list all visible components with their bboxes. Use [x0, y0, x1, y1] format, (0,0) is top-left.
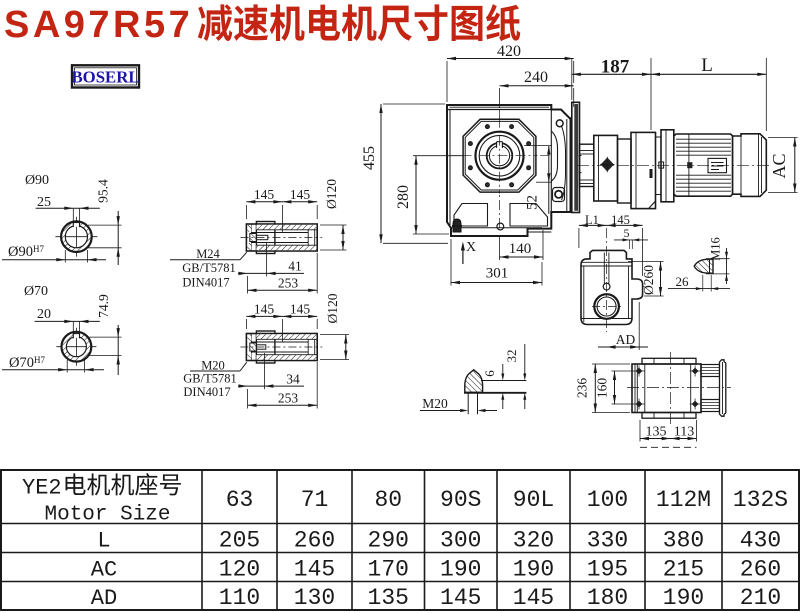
- svg-text:95.4: 95.4: [96, 179, 111, 203]
- svg-text:253: 253: [278, 276, 299, 291]
- svg-text:330: 330: [587, 528, 628, 554]
- svg-text:90L: 90L: [513, 487, 554, 513]
- svg-text:Motor Size: Motor Size: [44, 504, 170, 527]
- svg-text:M20: M20: [201, 359, 225, 373]
- svg-text:Ø90: Ø90: [25, 173, 49, 188]
- svg-text:301: 301: [486, 266, 509, 282]
- svg-text:DIN4017: DIN4017: [182, 276, 229, 290]
- svg-text:260: 260: [740, 557, 781, 583]
- svg-text:Ø70: Ø70: [24, 284, 48, 299]
- svg-text:Ø120: Ø120: [324, 179, 339, 209]
- svg-text:52: 52: [525, 195, 541, 210]
- svg-text:DIN4017: DIN4017: [183, 385, 230, 399]
- svg-text:455: 455: [361, 146, 378, 170]
- svg-text:210: 210: [740, 585, 781, 611]
- svg-text:280: 280: [395, 185, 412, 209]
- svg-text:145: 145: [440, 585, 481, 611]
- svg-text:140: 140: [509, 241, 532, 257]
- svg-text:AD: AD: [91, 586, 117, 611]
- svg-text:80: 80: [374, 487, 402, 513]
- svg-text:215: 215: [663, 557, 704, 583]
- svg-text:GB/T5781: GB/T5781: [182, 261, 235, 275]
- svg-text:253: 253: [278, 391, 299, 406]
- svg-text:290: 290: [368, 528, 409, 554]
- svg-text:380: 380: [663, 528, 704, 554]
- svg-text:32: 32: [504, 350, 519, 363]
- svg-text:L: L: [97, 529, 110, 554]
- svg-text:6: 6: [482, 370, 497, 377]
- svg-text:195: 195: [587, 557, 628, 583]
- svg-text:145: 145: [294, 557, 335, 583]
- svg-text:Ø260: Ø260: [641, 265, 656, 295]
- svg-text:190: 190: [663, 585, 704, 611]
- svg-text:240: 240: [524, 69, 548, 86]
- svg-text:20: 20: [37, 307, 51, 322]
- svg-text:430: 430: [740, 528, 781, 554]
- svg-text:190: 190: [513, 557, 554, 583]
- svg-text:71: 71: [301, 487, 329, 513]
- svg-text:AD: AD: [616, 332, 636, 347]
- svg-text:112M: 112M: [656, 487, 711, 513]
- svg-text:34: 34: [286, 372, 300, 387]
- svg-text:320: 320: [513, 528, 554, 554]
- svg-text:SA97R57: SA97R57: [4, 4, 193, 46]
- svg-text:100: 100: [587, 487, 628, 513]
- svg-text:205: 205: [219, 528, 260, 554]
- svg-text:132S: 132S: [733, 487, 788, 513]
- svg-text:170: 170: [368, 557, 409, 583]
- svg-text:236: 236: [575, 378, 590, 399]
- svg-text:190: 190: [440, 557, 481, 583]
- svg-text:YE2: YE2: [22, 476, 62, 501]
- svg-text:74.9: 74.9: [96, 294, 111, 318]
- svg-text:130: 130: [294, 585, 335, 611]
- svg-text:135: 135: [368, 585, 409, 611]
- svg-text:AC: AC: [769, 153, 789, 178]
- svg-text:145: 145: [254, 187, 275, 202]
- svg-text:5: 5: [624, 226, 630, 240]
- svg-text:M16: M16: [709, 237, 723, 261]
- svg-text:110: 110: [219, 585, 260, 611]
- svg-text:41: 41: [288, 259, 302, 274]
- svg-text:GB/T5781: GB/T5781: [183, 372, 236, 386]
- svg-text:145: 145: [513, 585, 554, 611]
- svg-text:300: 300: [440, 528, 481, 554]
- svg-text:BOSERL: BOSERL: [71, 68, 139, 87]
- svg-text:260: 260: [294, 528, 335, 554]
- svg-text:90S: 90S: [440, 487, 481, 513]
- svg-text:145: 145: [290, 187, 311, 202]
- svg-text:L: L: [701, 55, 713, 76]
- svg-text:145: 145: [254, 302, 275, 317]
- svg-text:113: 113: [674, 425, 694, 440]
- svg-text:X: X: [466, 240, 476, 255]
- svg-text:160: 160: [595, 378, 610, 399]
- svg-text:120: 120: [219, 557, 260, 583]
- svg-text:63: 63: [226, 487, 254, 513]
- svg-text:AC: AC: [91, 558, 117, 583]
- svg-text:420: 420: [497, 43, 521, 60]
- svg-text:26: 26: [676, 274, 690, 289]
- svg-text:M20: M20: [422, 396, 448, 411]
- svg-text:Ø120: Ø120: [325, 293, 340, 323]
- svg-text:145: 145: [290, 302, 311, 317]
- svg-text:180: 180: [587, 585, 628, 611]
- svg-text:M24: M24: [196, 247, 220, 261]
